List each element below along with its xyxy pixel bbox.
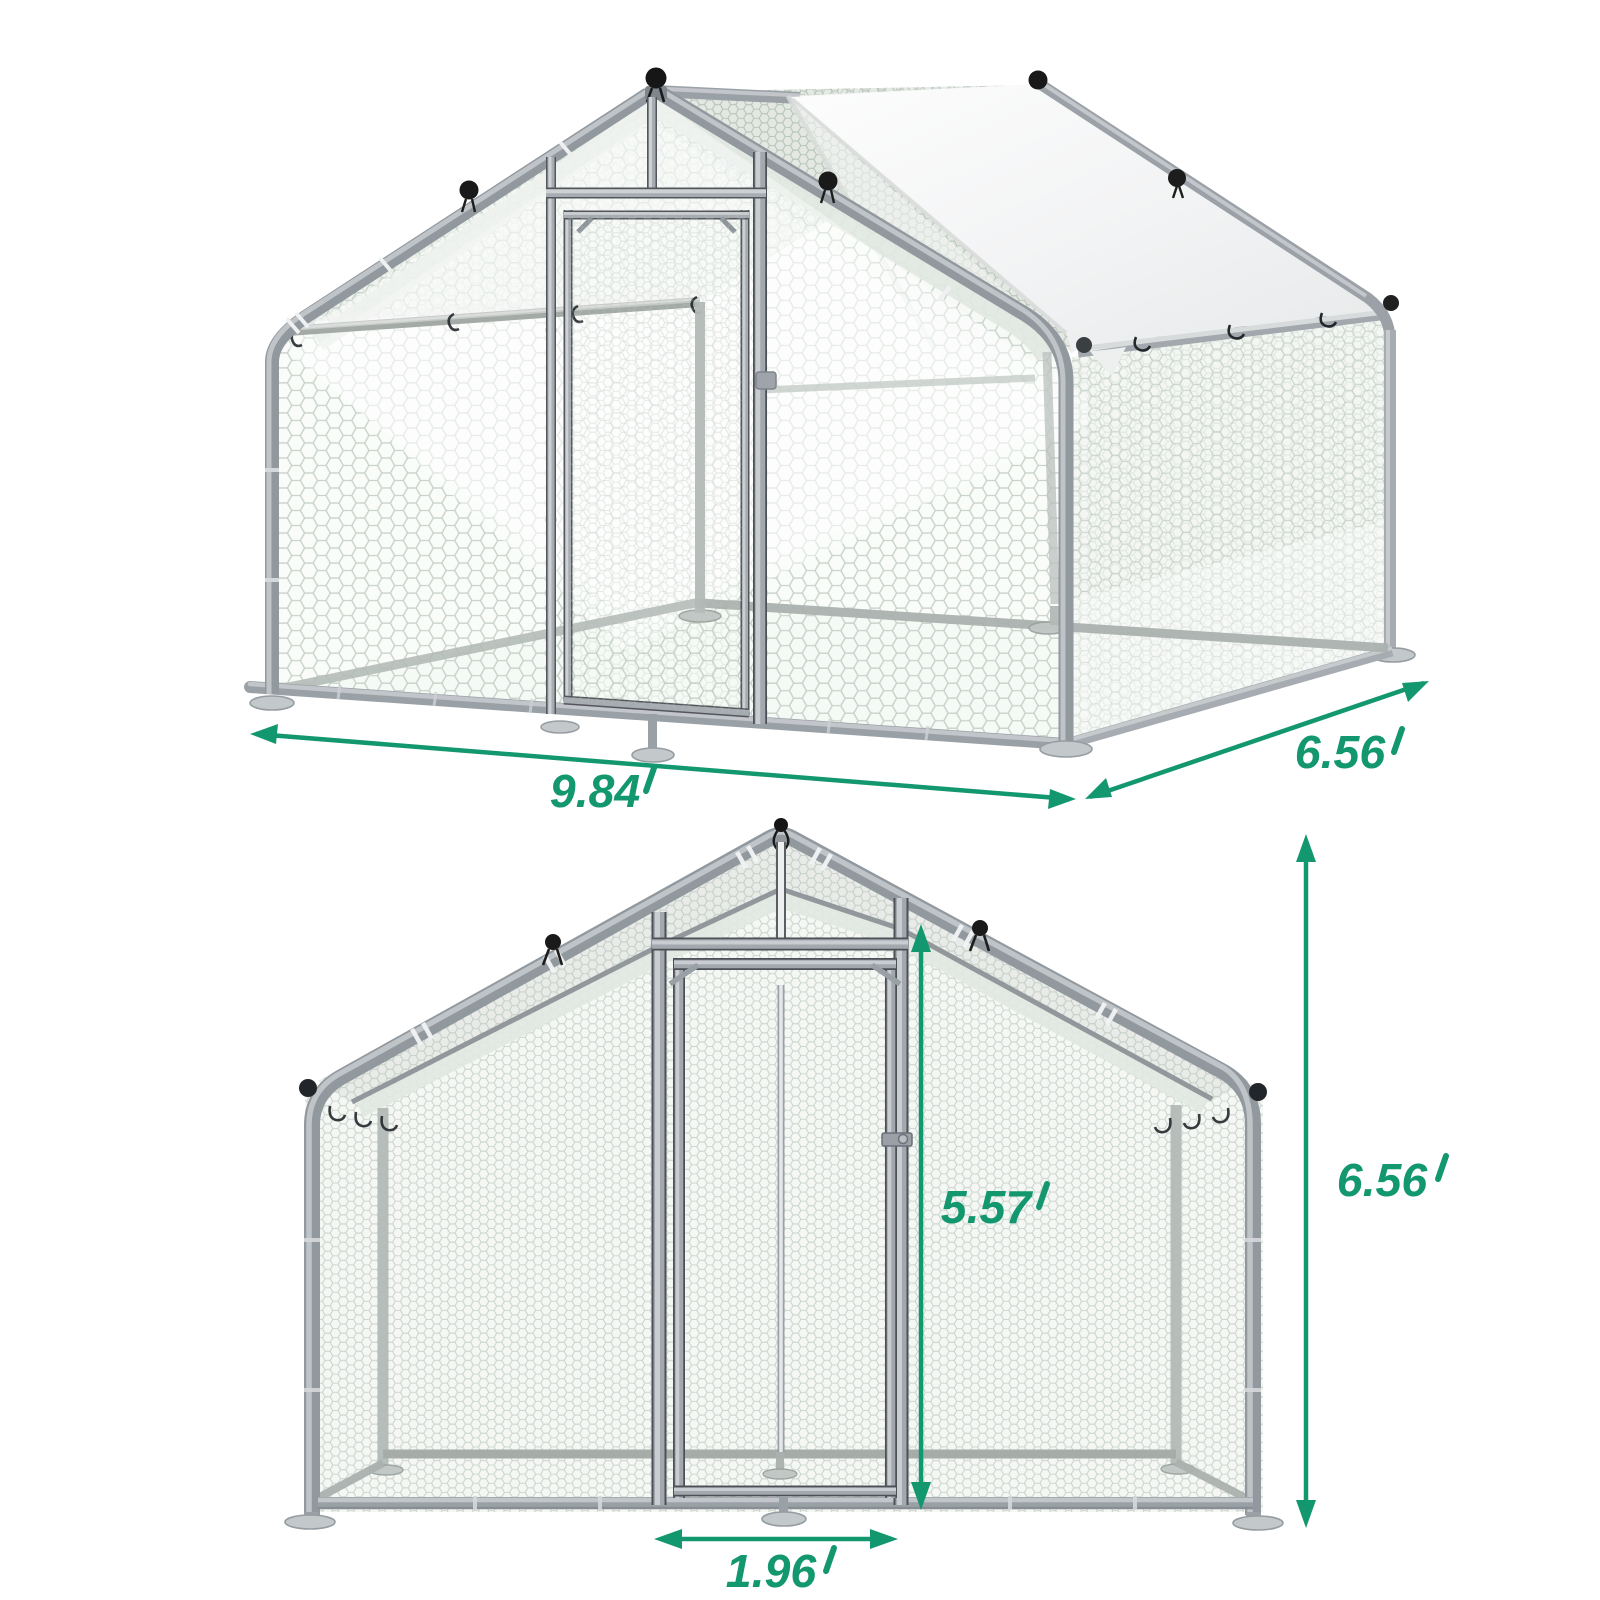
svg-text:6.56: 6.56 [1295, 726, 1387, 778]
svg-text:1.96: 1.96 [726, 1545, 818, 1597]
svg-text:5.57: 5.57 [941, 1181, 1034, 1233]
svg-text:9.84: 9.84 [550, 765, 641, 817]
svg-text:6.56: 6.56 [1337, 1154, 1429, 1206]
